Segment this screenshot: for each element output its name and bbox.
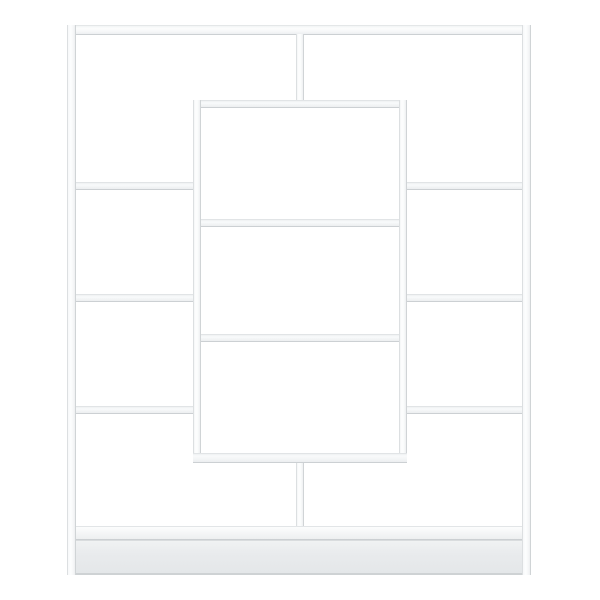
center-box-left-panel [193, 100, 201, 462]
center-box-top-panel [193, 100, 407, 108]
right-shelf-2 [407, 294, 522, 302]
bookshelf-plinth [76, 540, 522, 575]
center-box-bottom-panel [193, 453, 407, 463]
right-shelf-3 [407, 406, 522, 414]
bookshelf-right-side-panel [522, 25, 531, 575]
center-box-shelf-2 [201, 334, 399, 342]
product-image-canvas [0, 0, 600, 600]
center-divider-lower [296, 462, 304, 527]
right-shelf-1 [407, 182, 522, 190]
center-box-shelf-1 [201, 219, 399, 227]
bookshelf-bottom-panel [76, 526, 522, 540]
left-shelf-2 [76, 294, 193, 302]
left-shelf-3 [76, 406, 193, 414]
left-shelf-1 [76, 182, 193, 190]
bookshelf-left-side-panel [67, 25, 76, 575]
center-divider-upper [296, 34, 304, 101]
center-box-right-panel [399, 100, 407, 462]
